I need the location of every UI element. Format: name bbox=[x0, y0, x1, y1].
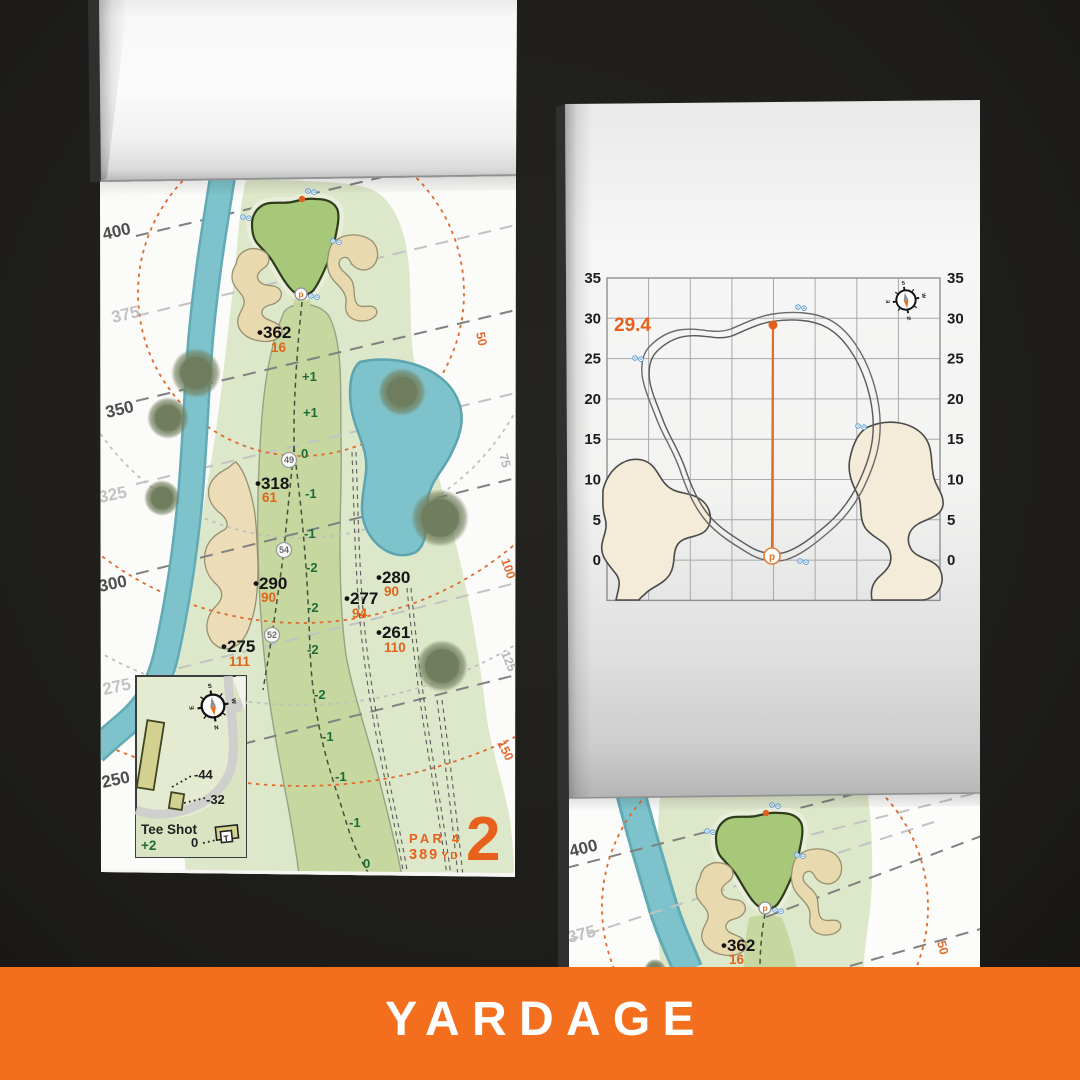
svg-text:10: 10 bbox=[947, 472, 964, 489]
svg-text:-1: -1 bbox=[304, 526, 316, 541]
svg-text:-32: -32 bbox=[206, 792, 225, 807]
svg-text:-1: -1 bbox=[322, 729, 334, 744]
svg-text:389YD: 389YD bbox=[409, 847, 460, 863]
svg-text:52: 52 bbox=[267, 630, 277, 640]
svg-text:Tee Shot: Tee Shot bbox=[141, 822, 198, 837]
svg-text:20: 20 bbox=[947, 391, 964, 408]
svg-text:-2: -2 bbox=[307, 642, 319, 657]
svg-text:+2: +2 bbox=[141, 838, 156, 853]
svg-text:16: 16 bbox=[729, 952, 745, 967]
svg-text:94: 94 bbox=[352, 606, 368, 621]
svg-text:0: 0 bbox=[191, 835, 198, 850]
svg-text:PAR 4: PAR 4 bbox=[409, 831, 462, 846]
svg-text:2: 2 bbox=[466, 805, 500, 874]
svg-text:-1: -1 bbox=[349, 815, 361, 830]
svg-text:25: 25 bbox=[947, 351, 964, 368]
svg-text:0: 0 bbox=[947, 552, 955, 569]
svg-text:-2: -2 bbox=[306, 560, 318, 575]
svg-text:-1: -1 bbox=[305, 486, 317, 501]
svg-text:15: 15 bbox=[584, 431, 601, 448]
svg-text:90: 90 bbox=[261, 590, 276, 605]
svg-text:16: 16 bbox=[271, 340, 287, 355]
svg-text:5: 5 bbox=[593, 512, 601, 529]
svg-text:50: 50 bbox=[473, 331, 490, 348]
svg-text:10: 10 bbox=[584, 472, 601, 489]
svg-text:110: 110 bbox=[384, 640, 406, 655]
svg-text:111: 111 bbox=[229, 654, 251, 669]
svg-text:0: 0 bbox=[593, 552, 601, 569]
svg-text:35: 35 bbox=[584, 270, 601, 287]
svg-text:p: p bbox=[769, 552, 775, 563]
svg-text:YARDAGE: YARDAGE bbox=[385, 993, 707, 1046]
svg-text:25: 25 bbox=[584, 351, 601, 368]
svg-text:0: 0 bbox=[363, 856, 370, 871]
svg-text:+1: +1 bbox=[303, 405, 318, 420]
svg-text:20: 20 bbox=[584, 391, 601, 408]
svg-text:+1: +1 bbox=[302, 369, 317, 384]
svg-text:90: 90 bbox=[384, 584, 399, 599]
svg-text:-44: -44 bbox=[194, 767, 214, 782]
svg-text:15: 15 bbox=[947, 431, 964, 448]
svg-text:35: 35 bbox=[947, 270, 964, 287]
svg-text:-2: -2 bbox=[307, 600, 319, 615]
svg-text:0: 0 bbox=[301, 446, 308, 461]
svg-text:30: 30 bbox=[584, 310, 601, 327]
svg-text:-2: -2 bbox=[314, 687, 326, 702]
svg-text:29.4: 29.4 bbox=[614, 315, 651, 336]
svg-text:61: 61 bbox=[262, 490, 278, 505]
svg-text:54: 54 bbox=[279, 545, 289, 555]
svg-text:-1: -1 bbox=[335, 769, 347, 784]
svg-text:49: 49 bbox=[284, 455, 294, 465]
svg-text:5: 5 bbox=[947, 512, 955, 529]
svg-text:30: 30 bbox=[947, 310, 964, 327]
